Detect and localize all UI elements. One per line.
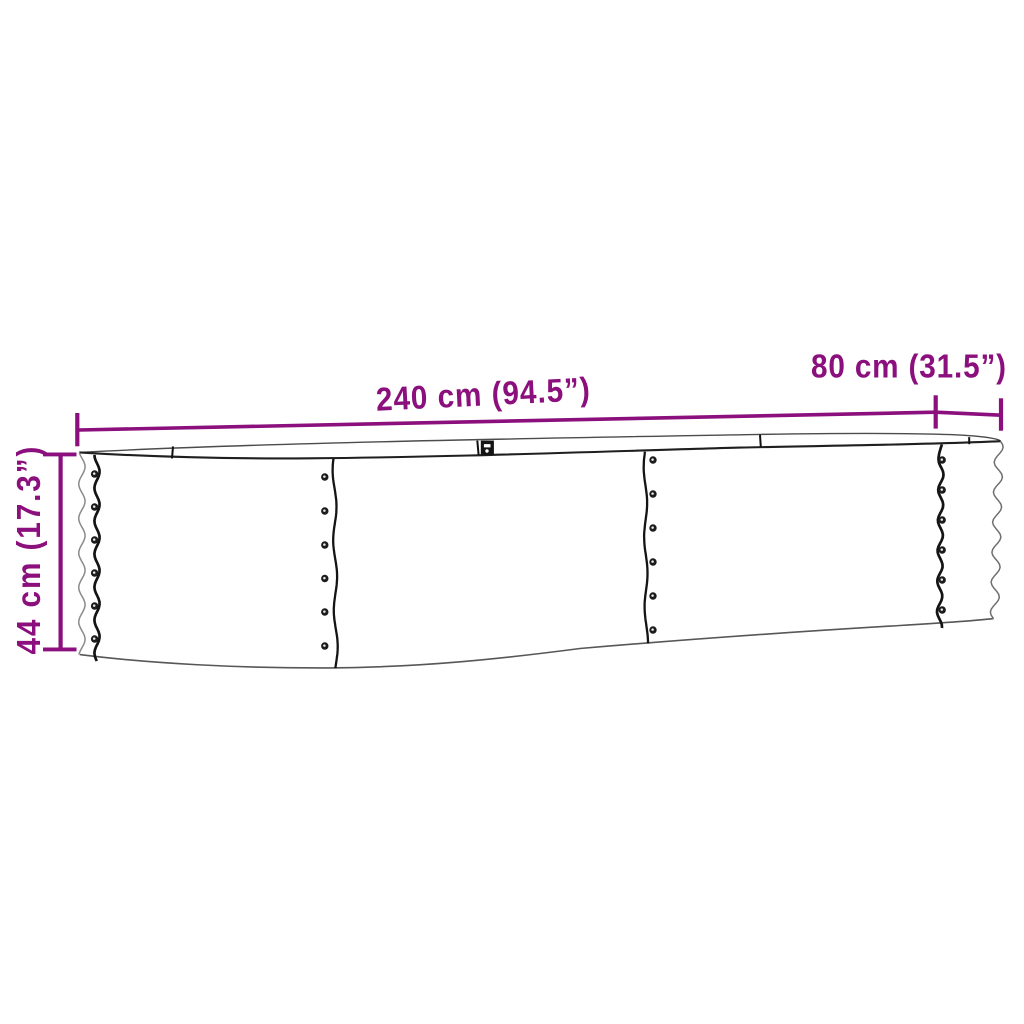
svg-text:80 cm (31.5”): 80 cm (31.5”) (811, 348, 1006, 385)
svg-text:44 cm (17.3”): 44 cm (17.3”) (11, 447, 48, 655)
